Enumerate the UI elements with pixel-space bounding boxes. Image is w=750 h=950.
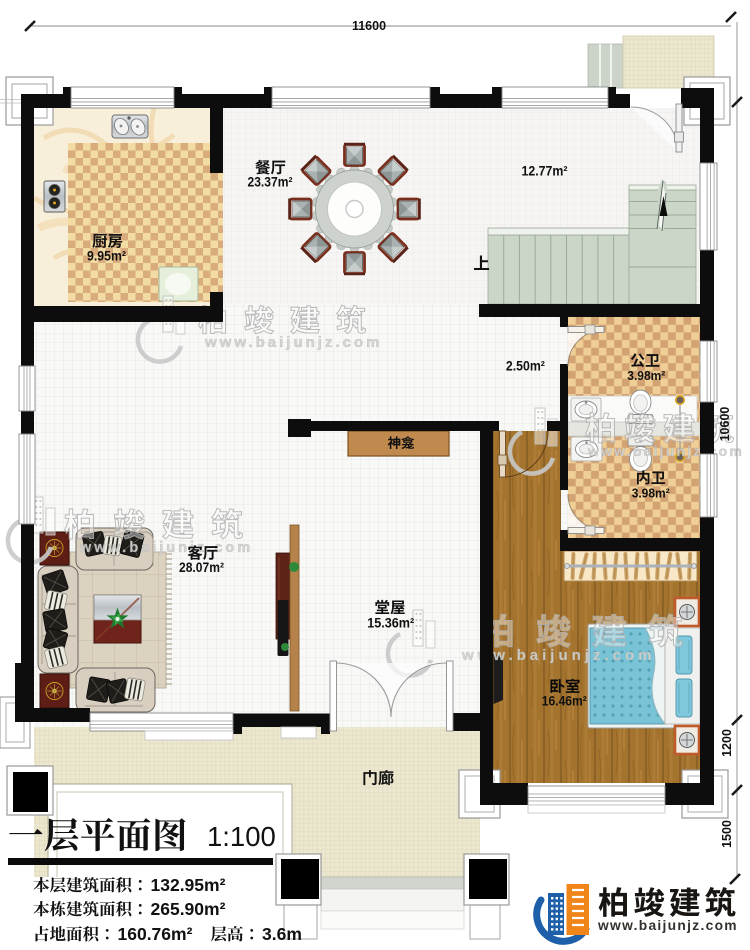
svg-text:9.95m²: 9.95m² bbox=[87, 249, 126, 264]
svg-text:www.baijunjz.com: www.baijunjz.com bbox=[597, 918, 738, 933]
svg-text:1200: 1200 bbox=[720, 729, 734, 757]
svg-text:www.baijunjz.com: www.baijunjz.com bbox=[587, 443, 744, 459]
svg-text:132.95m²: 132.95m² bbox=[151, 875, 226, 895]
svg-text:265.90m²: 265.90m² bbox=[151, 899, 226, 919]
svg-text:1500: 1500 bbox=[720, 820, 734, 848]
svg-text:28.07m²: 28.07m² bbox=[179, 560, 224, 575]
svg-text:10600: 10600 bbox=[718, 407, 732, 442]
svg-text:12.77m²: 12.77m² bbox=[522, 164, 568, 179]
svg-text:11600: 11600 bbox=[352, 19, 386, 33]
svg-text:www.baijunjz.com: www.baijunjz.com bbox=[204, 334, 382, 351]
svg-text:160.76m²: 160.76m² bbox=[118, 924, 193, 944]
svg-text:www.baijunjz.com: www.baijunjz.com bbox=[79, 540, 253, 556]
svg-text:1:100: 1:100 bbox=[207, 821, 276, 852]
svg-text:3.6m: 3.6m bbox=[262, 924, 302, 944]
svg-text:15.36m²: 15.36m² bbox=[367, 616, 414, 631]
svg-text:2.50m²: 2.50m² bbox=[506, 358, 545, 373]
svg-text:3.98m²: 3.98m² bbox=[632, 485, 671, 500]
svg-text:16.46m²: 16.46m² bbox=[542, 694, 587, 709]
svg-text:23.37m²: 23.37m² bbox=[248, 175, 293, 190]
svg-text:3.98m²: 3.98m² bbox=[627, 368, 666, 383]
